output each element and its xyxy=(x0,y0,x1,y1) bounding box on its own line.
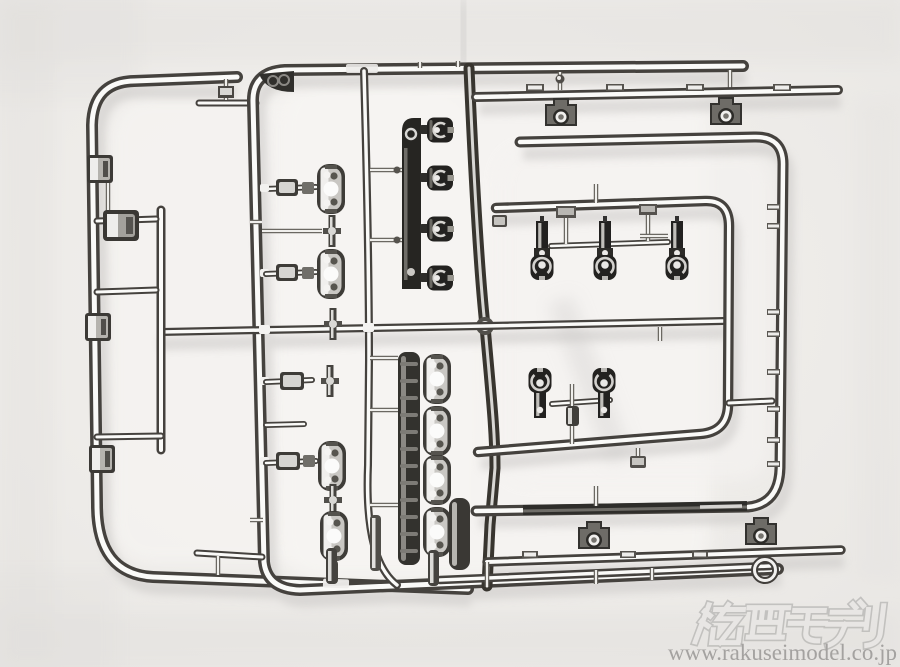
svg-text:www.rakuseimodel.co.jp: www.rakuseimodel.co.jp xyxy=(668,640,897,665)
